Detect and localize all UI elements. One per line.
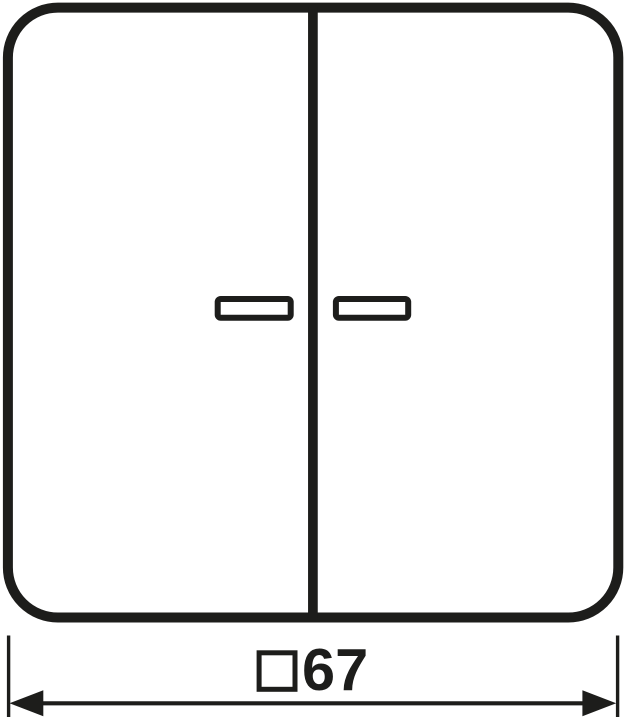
- svg-text:67: 67: [302, 636, 368, 703]
